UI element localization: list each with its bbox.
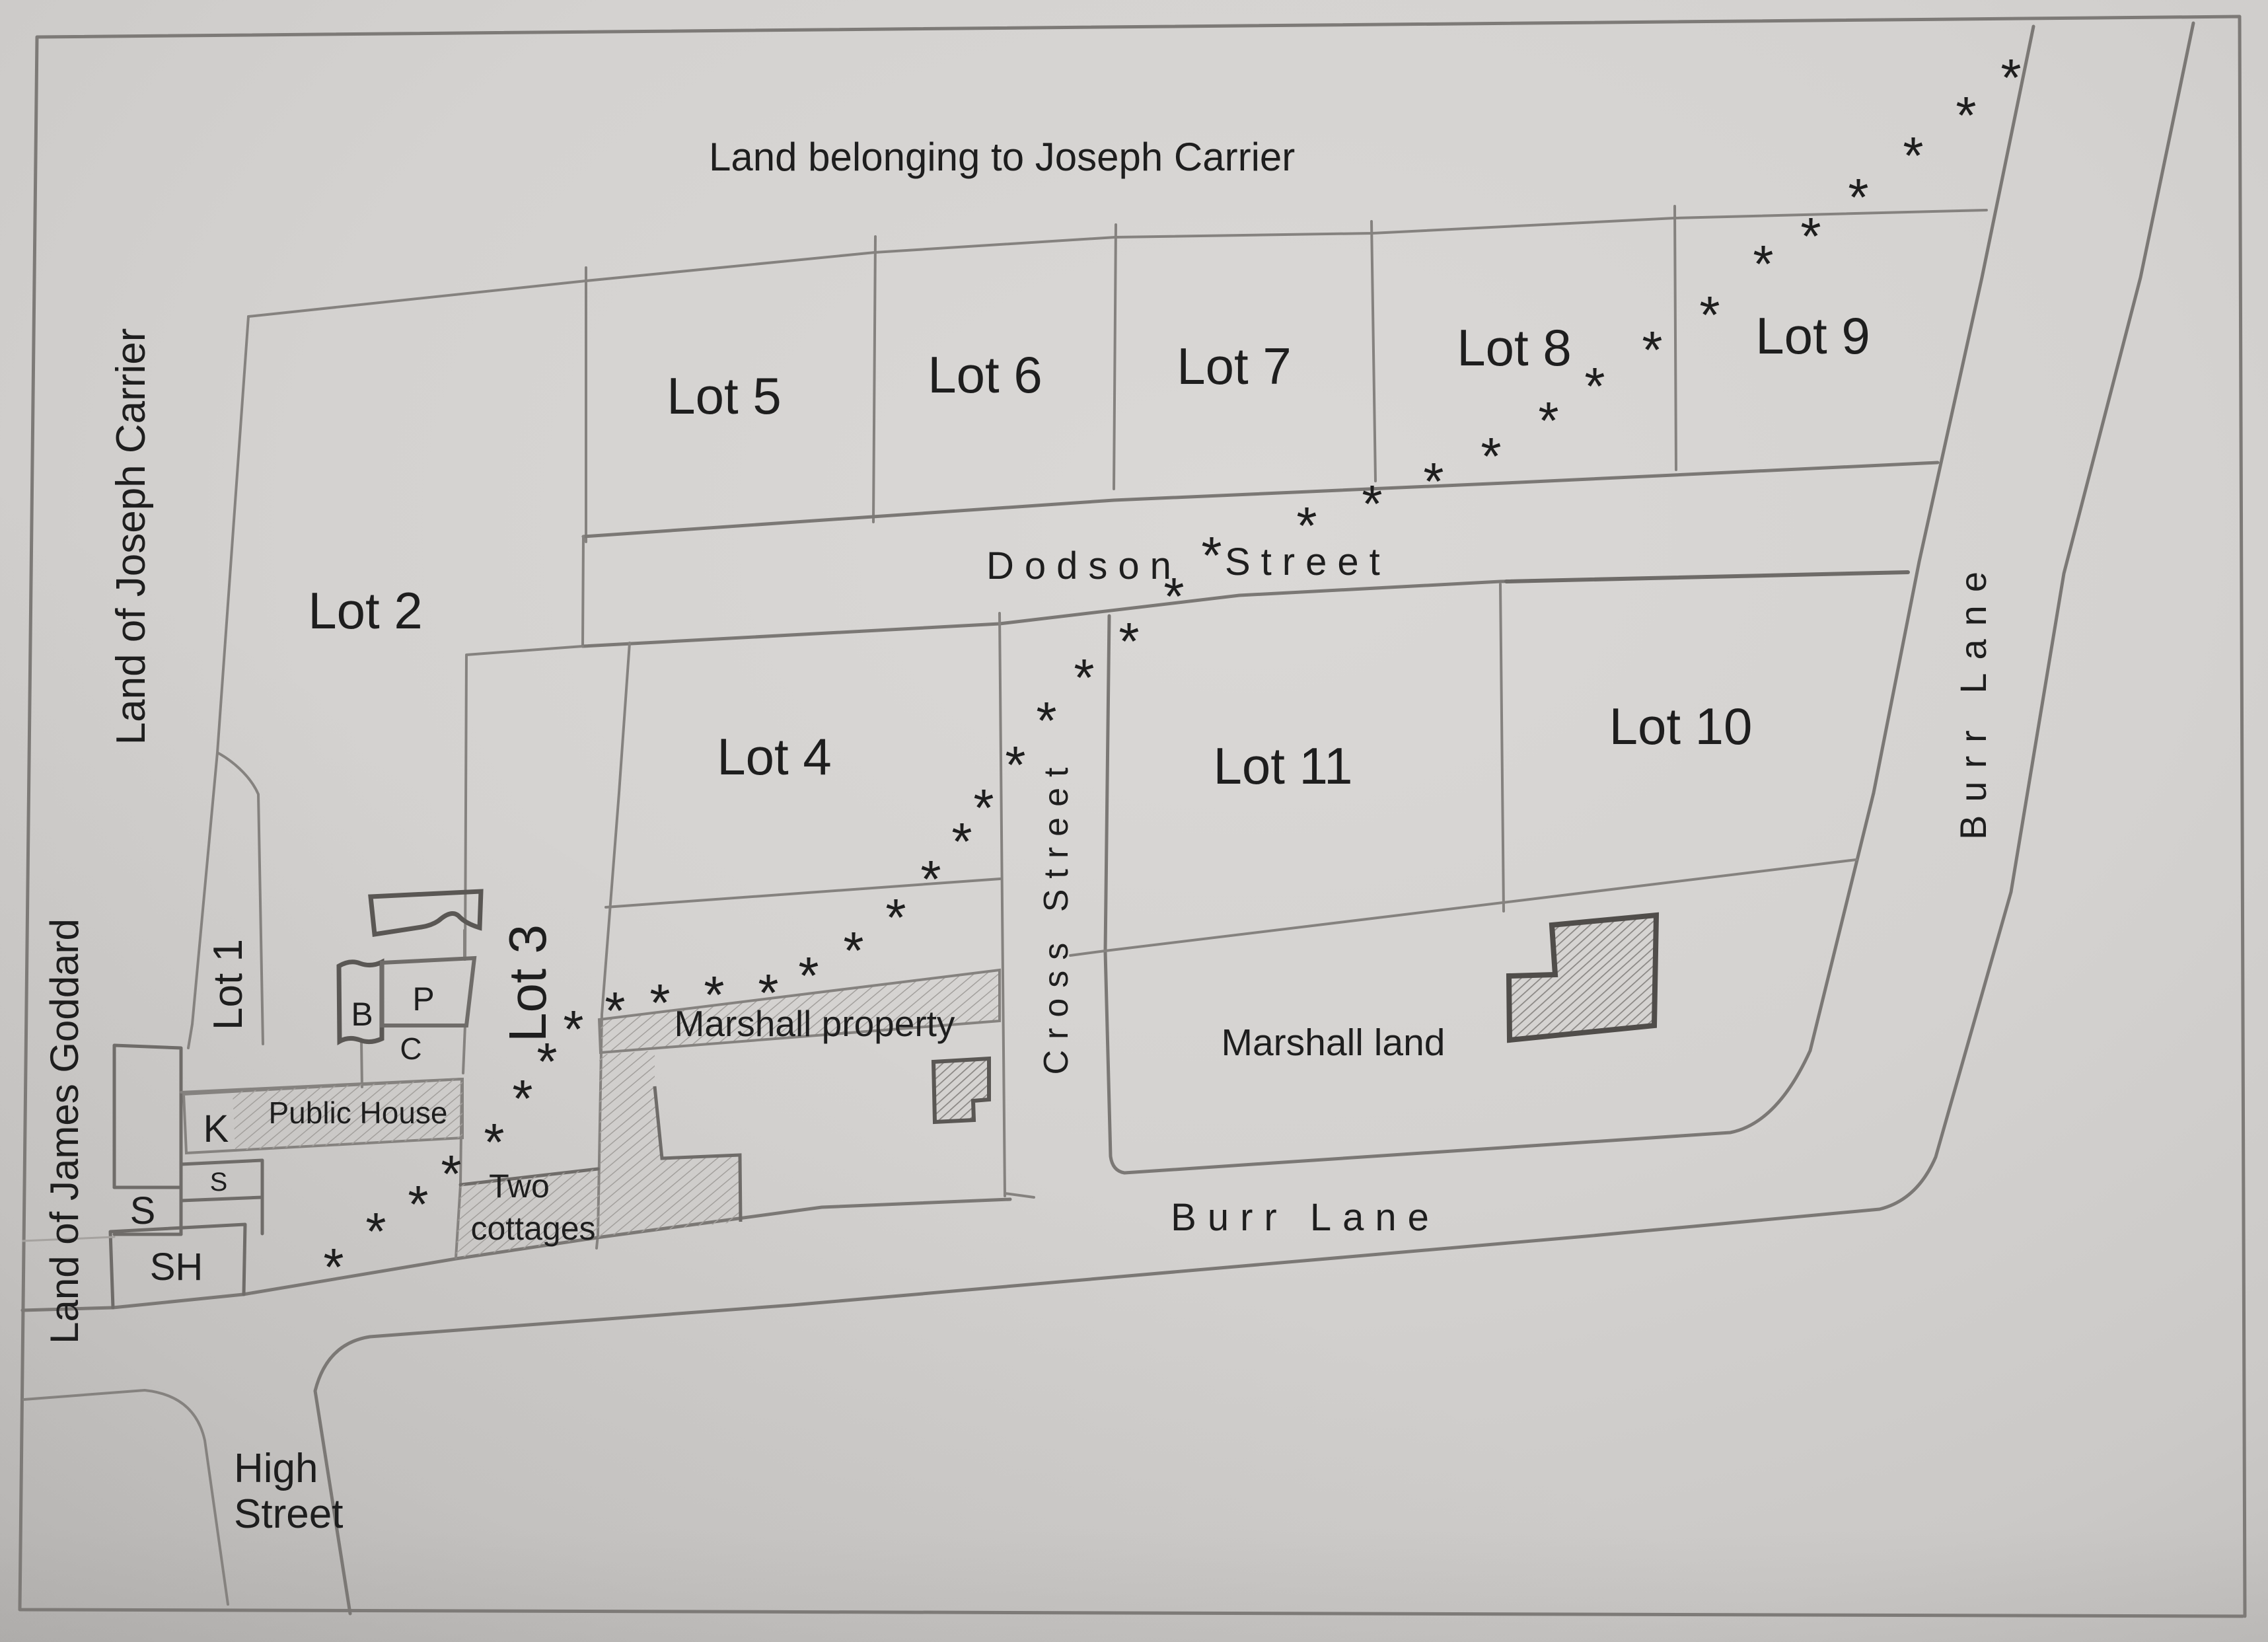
svg-text:*: * xyxy=(1800,207,1821,266)
svg-text:Land of Joseph Carrier: Land of Joseph Carrier xyxy=(108,328,154,745)
svg-text:*: * xyxy=(1074,648,1094,707)
svg-text:*: * xyxy=(649,973,670,1032)
svg-text:Lot 10: Lot 10 xyxy=(1609,697,1753,755)
svg-text:*: * xyxy=(885,888,906,947)
svg-text:Street: Street xyxy=(234,1491,343,1537)
svg-text:*: * xyxy=(1118,612,1139,671)
svg-text:*: * xyxy=(408,1175,428,1234)
svg-text:*: * xyxy=(563,1000,583,1059)
svg-text:*: * xyxy=(1753,235,1773,293)
svg-text:Land belonging to Joseph Carri: Land belonging to Joseph Carrier xyxy=(709,135,1295,179)
svg-text:*: * xyxy=(484,1113,504,1172)
svg-text:*: * xyxy=(704,965,724,1024)
svg-text:*: * xyxy=(1005,735,1025,794)
svg-text:*: * xyxy=(758,963,778,1022)
svg-text:Lot 5: Lot 5 xyxy=(667,367,781,425)
svg-text:Lot 6: Lot 6 xyxy=(928,346,1042,404)
svg-text:Lot 8: Lot 8 xyxy=(1457,318,1571,377)
svg-text:*: * xyxy=(1642,320,1662,379)
svg-text:Burr Lane: Burr Lane xyxy=(1171,1196,1440,1239)
svg-text:High: High xyxy=(234,1446,318,1491)
svg-text:Lot 4: Lot 4 xyxy=(717,728,831,786)
svg-text:*: * xyxy=(441,1144,461,1203)
svg-text:*: * xyxy=(1036,691,1056,750)
svg-text:*: * xyxy=(973,778,994,837)
svg-text:*: * xyxy=(1201,526,1222,585)
svg-text:cottages: cottages xyxy=(470,1210,595,1247)
svg-text:*: * xyxy=(1538,391,1558,450)
svg-text:*: * xyxy=(920,850,941,909)
svg-text:Marshall land: Marshall land xyxy=(1222,1022,1445,1064)
svg-text:C: C xyxy=(400,1031,421,1066)
svg-text:*: * xyxy=(604,981,625,1040)
svg-text:Lot 3: Lot 3 xyxy=(498,924,557,1042)
svg-text:*: * xyxy=(1584,357,1605,416)
svg-text:Two: Two xyxy=(489,1168,550,1205)
svg-text:*: * xyxy=(1848,168,1868,227)
svg-text:*: * xyxy=(1362,474,1382,533)
svg-text:Public House: Public House xyxy=(268,1096,447,1130)
svg-text:Cross Street: Cross Street xyxy=(1037,757,1076,1075)
svg-text:*: * xyxy=(512,1069,532,1128)
svg-text:P: P xyxy=(412,981,434,1018)
svg-text:Lot 1: Lot 1 xyxy=(205,939,251,1030)
svg-text:S: S xyxy=(130,1189,156,1232)
svg-text:*: * xyxy=(1296,496,1317,555)
svg-text:Lot 11: Lot 11 xyxy=(1213,737,1352,795)
svg-text:*: * xyxy=(951,812,972,871)
svg-text:B: B xyxy=(351,996,373,1033)
svg-text:SH: SH xyxy=(150,1246,203,1288)
svg-text:*: * xyxy=(1699,285,1720,344)
svg-text:Burr Lane: Burr Lane xyxy=(1952,558,1994,840)
svg-text:Lot 7: Lot 7 xyxy=(1177,337,1291,395)
svg-text:*: * xyxy=(536,1032,557,1091)
svg-text:Lot 9: Lot 9 xyxy=(1755,307,1870,365)
svg-text:Dodson: Dodson xyxy=(986,544,1182,587)
svg-text:*: * xyxy=(1481,427,1501,486)
svg-text:*: * xyxy=(843,921,863,980)
svg-text:*: * xyxy=(798,946,819,1005)
svg-text:*: * xyxy=(1163,567,1184,626)
svg-text:*: * xyxy=(1903,126,1923,185)
svg-text:*: * xyxy=(1956,86,1976,145)
svg-text:S: S xyxy=(210,1168,228,1197)
svg-text:*: * xyxy=(365,1202,386,1261)
svg-text:*: * xyxy=(323,1238,344,1296)
svg-text:*: * xyxy=(1423,452,1444,511)
svg-text:Land of James Goddard: Land of James Goddard xyxy=(42,918,87,1344)
svg-text:Lot 2: Lot 2 xyxy=(308,581,422,640)
svg-text:*: * xyxy=(2000,48,2021,107)
svg-text:K: K xyxy=(203,1107,229,1150)
